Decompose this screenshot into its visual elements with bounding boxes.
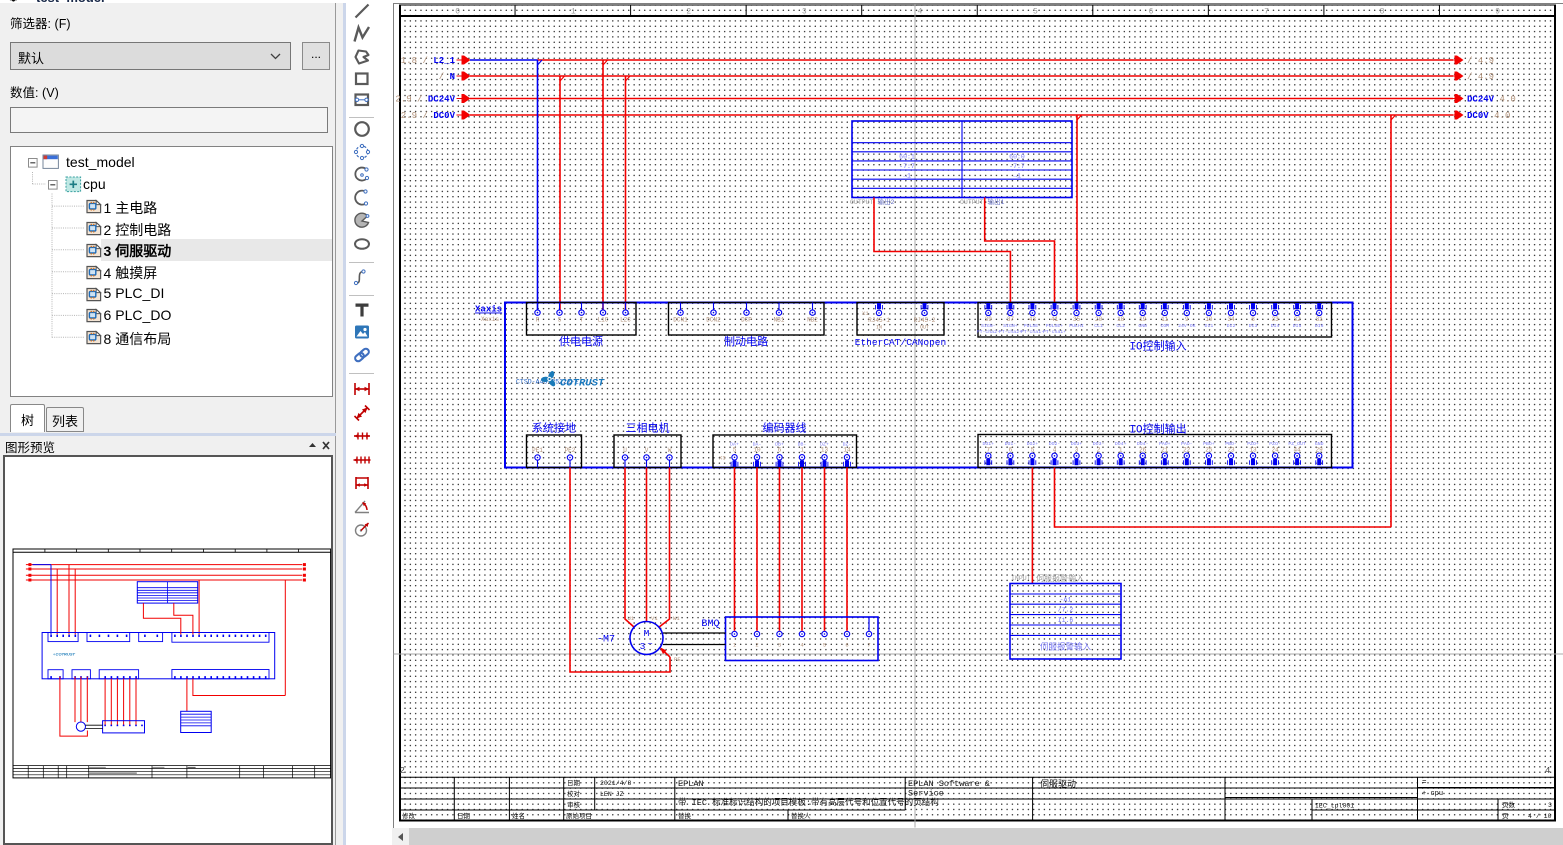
svg-text:DZ-: DZ- [843, 442, 852, 448]
svg-text:DO2+: DO2+ [1027, 441, 1039, 447]
svg-text:伺服报警输入: 伺服报警输入 [1036, 573, 1084, 584]
svg-text:6: 6 [778, 447, 782, 454]
svg-text:审核: 审核 [567, 800, 581, 809]
svg-text:原始项目: 原始项目 [566, 811, 592, 820]
svg-text:PULHI: PULHI [1069, 323, 1084, 329]
svg-text:24V-OK: 24V-OK [1178, 323, 1195, 329]
svg-text:编码器线: 编码器线 [762, 421, 806, 436]
svg-text:5: 5 [1033, 8, 1038, 17]
svg-text:DO4-: DO4- [1137, 441, 1149, 447]
svg-text:PULSE+: PULSE+ [1046, 323, 1063, 329]
svg-text:DA+: DA+ [730, 442, 739, 448]
svg-text:PT-cha1+: PT-cha1+ [1043, 329, 1066, 335]
svg-text:43: 43 [1029, 316, 1037, 323]
svg-text:7: 7 [986, 446, 990, 453]
svg-text:CL1: CL1 [1094, 323, 1103, 329]
svg-text:S: S [558, 317, 562, 324]
svg-text:18: 18 [1117, 316, 1125, 323]
svg-text:日期: 日期 [567, 779, 581, 787]
svg-text:/ 4.9: / 4.9 [1467, 56, 1494, 66]
svg-text:-7:7: -7:7 [899, 163, 915, 170]
svg-text:21: 21 [1161, 446, 1169, 453]
svg-text:IO控制输入: IO控制输入 [1129, 339, 1186, 354]
svg-text:DI6: DI6 [1315, 323, 1324, 329]
svg-text:25: 25 [1205, 446, 1213, 453]
svg-text:/ 4.9: / 4.9 [1467, 72, 1494, 82]
svg-text:20: 20 [1095, 316, 1103, 323]
svg-text:-A1: -A1 [1060, 596, 1072, 603]
svg-text:1.8 / L2_1: 1.8 / L2_1 [401, 56, 456, 66]
svg-text:系统接地: 系统接地 [532, 422, 576, 436]
svg-text:26: 26 [1139, 446, 1147, 453]
svg-text:CL2: CL2 [1116, 323, 1125, 329]
svg-text:→1: →1 [1013, 172, 1021, 179]
svg-text:32: 32 [1293, 316, 1301, 323]
svg-text:2: 2 [755, 642, 758, 649]
svg-text:GND: GND [1315, 441, 1324, 447]
svg-text:14: 14 [843, 447, 851, 454]
svg-text:U: U [623, 447, 627, 454]
svg-text:6: 6 [1149, 8, 1154, 17]
svg-text:R: R [536, 317, 540, 324]
svg-text:EPLAN Software &: EPLAN Software & [908, 779, 990, 789]
svg-text:PT-cha1-: PT-cha1- [1021, 329, 1044, 335]
svg-text:PBO+: PBO+ [1203, 441, 1215, 447]
svg-text:13: 13 [821, 447, 829, 454]
svg-text:PZO-: PZO- [1269, 441, 1281, 447]
svg-text:PE1: PE1 [532, 447, 543, 454]
svg-text:/ N: / N [439, 72, 455, 82]
svg-text:L2C: L2C [620, 317, 631, 324]
svg-text:2.9 / DC24V: 2.9 / DC24V [395, 95, 455, 105]
svg-text:4 / 10: 4 / 10 [1528, 813, 1552, 820]
svg-text:替换人: 替换人 [791, 811, 811, 820]
svg-text:X3: X3 [719, 455, 726, 462]
svg-text:RJ45-2: RJ45-2 [914, 317, 936, 324]
svg-text:T: T [580, 317, 584, 324]
svg-text:35: 35 [1073, 316, 1081, 323]
svg-text:6: 6 [1009, 446, 1013, 453]
svg-text:V1: V1 [651, 615, 658, 622]
svg-text:DI2: DI2 [1227, 323, 1236, 329]
svg-text:姓名: 姓名 [512, 811, 525, 820]
svg-text:V: V [645, 447, 649, 454]
svg-text:PT-cha2-: PT-cha2- [977, 329, 1000, 335]
svg-text:2: 2 [1097, 446, 1101, 453]
svg-text:BMQ: BMQ [701, 619, 719, 630]
svg-text:1: 1 [733, 642, 737, 649]
svg-text:DO3+: DO3+ [1071, 441, 1083, 447]
svg-text:19: 19 [1139, 316, 1147, 323]
svg-text:INPUT: INPUT [1011, 575, 1031, 582]
svg-text:34: 34 [1227, 316, 1235, 323]
svg-text:DI4: DI4 [1271, 323, 1280, 329]
svg-text:RJ45-1: RJ45-1 [868, 317, 890, 324]
svg-text:DI5: DI5 [1293, 323, 1302, 329]
svg-text:修改: 修改 [402, 811, 416, 820]
svg-text:22: 22 [1183, 446, 1191, 453]
svg-text:制动电路: 制动电路 [724, 335, 768, 349]
svg-text:5: 5 [823, 642, 826, 649]
svg-text:LEN JZ: LEN JZ [600, 791, 624, 798]
svg-text:9: 9 [1185, 316, 1189, 323]
svg-text:+ cpu: + cpu [1422, 790, 1443, 798]
svg-text:7: 7 [1264, 8, 1269, 17]
svg-text:2.9 / DC0V: 2.9 / DC0V [401, 111, 456, 121]
svg-text:DI3: DI3 [1249, 323, 1258, 329]
svg-text:2: 2 [400, 766, 405, 776]
svg-text:13: 13 [1249, 446, 1257, 453]
svg-text:SIGN-: SIGN- [981, 323, 996, 329]
svg-text:3: 3 [1548, 802, 1552, 809]
svg-text:8: 8 [1380, 8, 1385, 17]
svg-text:DCN1: DCN1 [673, 317, 688, 324]
svg-text:DA-: DA- [753, 442, 762, 448]
svg-text:PE: PE [674, 656, 681, 663]
svg-text:3: 3 [1075, 446, 1079, 453]
svg-text:OUTPUT 输出1: OUTPUT 输出1 [960, 197, 1004, 206]
svg-text:10: 10 [1205, 316, 1213, 323]
svg-text:DC0V 4.0: DC0V 4.0 [1467, 111, 1510, 121]
svg-text:PULSE-: PULSE- [1024, 323, 1041, 329]
svg-text:1: 1 [571, 8, 576, 17]
svg-text:3: 3 [640, 641, 646, 652]
svg-text:DCP: DCP [741, 317, 752, 324]
svg-text:三相电机: 三相电机 [625, 421, 669, 436]
svg-text:4: 4 [1545, 766, 1550, 776]
svg-text:6: 6 [845, 642, 848, 649]
svg-text:U1: U1 [628, 615, 635, 622]
svg-text:5: 5 [733, 447, 737, 454]
svg-text:IO控制输出: IO控制输出 [1129, 422, 1186, 437]
svg-text:11: 11 [1161, 316, 1169, 323]
svg-text:DB+: DB+ [775, 442, 784, 448]
svg-text:DZ+: DZ+ [820, 442, 829, 448]
svg-text:8: 8 [1251, 316, 1255, 323]
svg-text:COTRUST: COTRUST [560, 378, 605, 390]
svg-text:校对: 校对 [567, 789, 581, 798]
svg-text:COM: COM [1160, 323, 1169, 329]
svg-text:~: ~ [647, 640, 652, 650]
svg-text:7: 7 [867, 642, 870, 649]
svg-text:I1.6: I1.6 [1058, 617, 1074, 624]
svg-text:替换: 替换 [678, 811, 692, 820]
svg-text:DO4+: DO4+ [1115, 441, 1127, 447]
svg-text:37: 37 [1007, 316, 1015, 323]
svg-text:DC24V 4.0: DC24V 4.0 [1467, 95, 1516, 105]
svg-text:-7:7: -7:7 [1009, 163, 1025, 170]
svg-text:带 IEC 标准标识结构的项目模板:带有高层代号和位置代号的: 带 IEC 标准标识结构的项目模板:带有高层代号和位置代号的页结构 [678, 797, 939, 808]
svg-text:Xaxis: Xaxis [481, 316, 499, 323]
svg-text:W1: W1 [673, 615, 680, 622]
svg-text:PE2: PE2 [565, 447, 576, 454]
svg-text:PAO+: PAO+ [1159, 441, 1171, 447]
svg-text:页数: 页数 [1502, 800, 1516, 809]
svg-text:GND: GND [1138, 323, 1147, 329]
svg-text:23: 23 [1227, 446, 1235, 453]
svg-text:供电电源: 供电电源 [559, 334, 603, 349]
svg-text:9: 9 [1495, 8, 1500, 17]
svg-text:41: 41 [1051, 316, 1059, 323]
svg-text:DO1+: DO1+ [982, 441, 994, 447]
svg-text:页: 页 [1502, 812, 1509, 820]
svg-text:DCN2: DCN2 [706, 317, 721, 324]
svg-text:EtherCAT/CANopen: EtherCAT/CANopen [855, 337, 947, 348]
svg-text:60:0: 60:0 [1009, 154, 1025, 161]
svg-text:PAO-: PAO- [1181, 441, 1193, 447]
svg-text:Xaxis: Xaxis [475, 305, 502, 315]
svg-text:EPLAN: EPLAN [678, 779, 704, 789]
svg-text:-M7: -M7 [597, 635, 615, 646]
svg-text:2: 2 [686, 8, 691, 17]
svg-text:NB1: NB1 [774, 317, 785, 324]
svg-text:PBO-: PBO- [1225, 441, 1237, 447]
svg-text:60:1: 60:1 [899, 154, 915, 161]
svg-text:1: 1 [1119, 446, 1123, 453]
svg-text:DO3-: DO3- [1093, 441, 1105, 447]
svg-text:3: 3 [802, 8, 807, 17]
svg-text:DO1-: DO1- [1005, 441, 1017, 447]
svg-text:24: 24 [1271, 446, 1279, 453]
svg-text:33: 33 [1271, 316, 1279, 323]
svg-text:Service: Service [908, 789, 944, 799]
svg-text:1: 1 [800, 447, 804, 454]
svg-text:IN: IN [876, 325, 882, 331]
svg-text:DI1: DI1 [1205, 323, 1214, 329]
svg-text:4: 4 [1053, 446, 1057, 453]
svg-text:M: M [644, 628, 650, 639]
svg-text:OUT: OUT [920, 325, 929, 331]
svg-text:PZ_OUT: PZ_OUT [1288, 441, 1305, 447]
svg-text:SIGN+: SIGN+ [1003, 323, 1018, 329]
svg-text:4: 4 [800, 642, 804, 649]
svg-text:5: 5 [1031, 446, 1035, 453]
svg-text:伺服报警输入: 伺服报警输入 [1040, 642, 1092, 653]
svg-text:X1: X1 [862, 310, 869, 317]
svg-text:4: 4 [917, 8, 922, 17]
svg-text:0: 0 [455, 8, 460, 17]
svg-text:→1: →1 [903, 172, 911, 179]
svg-text:伺服驱动: 伺服驱动 [1040, 778, 1076, 790]
svg-text:3: 3 [778, 642, 781, 649]
svg-text:◐COTRUST: ◐COTRUST [53, 652, 75, 657]
svg-text:PT-cha2+: PT-cha2+ [999, 329, 1022, 335]
svg-text:NB2: NB2 [807, 317, 818, 324]
svg-text:39: 39 [985, 316, 993, 323]
svg-text:L1C: L1C [598, 317, 609, 324]
svg-text:=: = [1422, 779, 1427, 787]
svg-text:44: 44 [1293, 446, 1301, 453]
svg-text:W: W [668, 447, 672, 454]
svg-text:29: 29 [1316, 446, 1324, 453]
svg-text:DB-: DB- [798, 442, 807, 448]
svg-text:DO2-: DO2- [1049, 441, 1061, 447]
svg-text:日期: 日期 [457, 812, 471, 820]
svg-text:PZO+: PZO+ [1247, 441, 1259, 447]
svg-text:31: 31 [1316, 316, 1324, 323]
svg-text:10: 10 [753, 447, 761, 454]
svg-text:IEC_tpl001: IEC_tpl001 [1315, 803, 1354, 810]
svg-text:OUTPUT 输出2: OUTPUT 输出2 [850, 197, 894, 206]
svg-text:2021/4/8: 2021/4/8 [600, 780, 631, 787]
svg-text:/7.2: /7.2 [1058, 607, 1074, 614]
